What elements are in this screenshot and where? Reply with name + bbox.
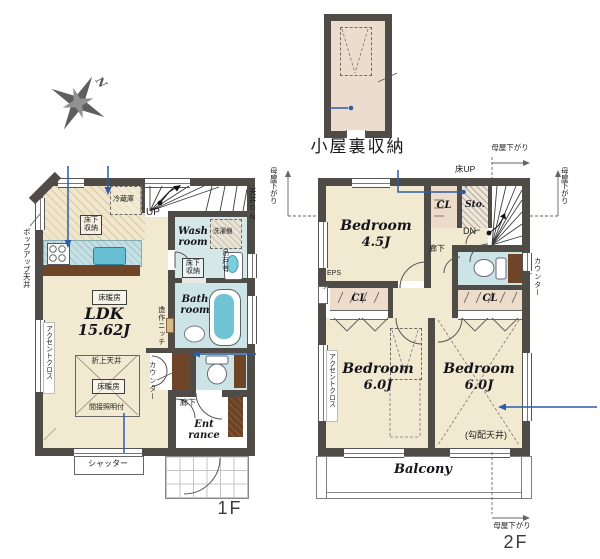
f2-bedroom2-size: 6.0J: [337, 379, 419, 394]
f1-bathroom-label: Bath room: [177, 294, 213, 316]
f2-wall-sto-stairs: [488, 186, 492, 228]
f1-niche-box: [166, 318, 174, 333]
f2-hallway-label: 廊下: [429, 245, 445, 254]
f2-storage-label: Sto.: [462, 200, 488, 210]
f2-moya-top-label: 母屋下がり: [482, 144, 538, 152]
f1-wall-nook-top: [146, 348, 168, 353]
f1-hallway-label: 廊下: [180, 399, 196, 408]
f2-bedroom1-size: 4.5J: [335, 236, 417, 251]
f2-wall-bed1-bottom: [326, 281, 398, 288]
f1-window-top-1: [58, 178, 84, 188]
f2-bedroom2-name: Bedroom: [337, 362, 419, 378]
f1-wall-hall-top-a: [168, 390, 196, 397]
f1-wall-bath-bottom: [168, 348, 255, 353]
f2-window-top-1: [352, 178, 390, 188]
f2-balcony-post-right: [521, 456, 532, 499]
f1-ldk-size: 15.62J: [73, 323, 135, 339]
f2-closet-right-label: CL: [458, 293, 522, 304]
f2-stairs-floor: [492, 186, 522, 247]
f2-closet-left-doors: [330, 310, 388, 320]
attic-ladder-outline: [340, 27, 372, 76]
f1-wall-bottom: [35, 448, 255, 456]
f2-down-label: DN: [463, 227, 476, 237]
f1-niche-label: 造作ニッチ: [157, 306, 165, 346]
f1-entrance-porch: [165, 456, 249, 499]
f1-window-right-2: [247, 296, 257, 344]
f1-stairs-floor: [145, 186, 247, 211]
floorplan-canvas: 小屋裏収納 冷蔵庫 床下収納 UP 洗濯機 Wash room 床下収納 吊戸有…: [0, 0, 600, 559]
f2-wall-bed1-right: [424, 186, 431, 288]
f1-wall-wash-left-b: [168, 270, 175, 280]
f2-counter-label: カウンター: [533, 257, 541, 297]
f1-wall-hall-top-b: [222, 390, 255, 397]
f1-shoe-cabinet: [228, 397, 243, 437]
f1-floor-heating-center: 床暖房: [92, 379, 125, 394]
f1-kitchen-island: [93, 247, 126, 265]
f1-window-right-1: [247, 254, 257, 278]
f1-counter-label: カウンター: [148, 361, 156, 401]
f2-balcony-label: Balcony: [392, 463, 454, 478]
f1-bathtub-water: [214, 294, 234, 339]
f2-accent-cloth-label: アクセントクロス: [327, 353, 334, 407]
f1-floor-label: 1F: [208, 498, 252, 519]
f2-window-right-2: [522, 353, 532, 421]
f2-eps-label: EPS: [327, 270, 341, 278]
f2-bedroom3-name: Bedroom: [438, 362, 520, 378]
f2-bedroom1-name: Bedroom: [335, 219, 417, 235]
f1-indirect-lighting-label: 間接照明付: [75, 404, 138, 412]
f1-hanging-cupboard-label: 吊戸有: [221, 249, 229, 273]
f2-toilet-counter: [508, 254, 522, 283]
f1-wall-bath-left: [168, 280, 175, 348]
f2-window-left-1: [318, 222, 328, 268]
f1-ceiling-down-label: 天井DN: [248, 188, 256, 221]
f2-balcony-post-left: [316, 456, 327, 499]
f1-accent-cloth-label: アクセントクロス: [44, 325, 51, 379]
f2-wall-toilet-top: [452, 245, 522, 252]
f1-refrigerator-label: 冷蔵庫: [113, 196, 134, 204]
f2-wall-center: [428, 318, 435, 448]
f1-entrance-label: Ent rance: [186, 419, 222, 441]
f2-moya-left-label: 母屋下がり: [269, 167, 277, 205]
f1-wall-toilet-left: [190, 353, 196, 390]
f2-wall-top: [318, 178, 530, 186]
f2-sloped-ceiling-label: (勾配天井): [450, 431, 522, 441]
f1-shutter-label: シャッター: [74, 460, 142, 469]
f1-up-label: UP: [146, 207, 160, 218]
f1-wall-hall-left: [168, 390, 176, 448]
f2-moya-bottom-label: 母屋下がり: [484, 522, 540, 530]
f1-window-left-1: [35, 198, 45, 230]
f1-kitchen-bar-counter: [43, 265, 140, 276]
f2-window-bottom-2: [450, 448, 510, 458]
f1-floor-heating-top: 床暖房: [92, 290, 127, 305]
f2-bedroom3-size: 6.0J: [438, 379, 520, 394]
f1-raised-ceiling-label: 折上天井: [75, 357, 138, 365]
f1-wall-stairs-bottom: [168, 211, 255, 217]
f2-closet-top-label: CL: [431, 200, 457, 211]
f1-underfloor-storage-wash: 床下収納: [182, 258, 204, 278]
f2-wall-clleft-right: [388, 288, 393, 318]
f1-nook-counter: [172, 353, 190, 390]
f2-closet-right-doors: [458, 310, 522, 320]
f2-floor-up-label: 床UP: [455, 165, 475, 174]
compass-north-letter: N: [93, 75, 109, 91]
compass-rose-icon: [37, 62, 118, 143]
f1-underfloor-storage-kitchen: 床下収納: [80, 215, 102, 235]
f1-window-top-2: [145, 178, 190, 188]
f1-washing-machine-label: 洗濯機: [213, 228, 233, 235]
f2-moya-right-label: 母屋下がり: [560, 167, 568, 205]
f1-stove: [47, 243, 70, 265]
f2-floor-label: 2F: [496, 532, 536, 553]
attic-label: 小屋裏収納: [300, 138, 416, 157]
f1-wall-wash-left-a: [168, 217, 175, 250]
f2-hall-strip-floor: [393, 288, 424, 318]
f2-closet-left-label: CL: [330, 293, 388, 304]
f1-toilet-vanity: [234, 355, 246, 388]
f2-eps-slot: [318, 286, 328, 304]
f1-ldk-name: LDK: [73, 305, 135, 323]
f1-bath-door-gap: [182, 278, 206, 283]
f2-window-right-1: [522, 253, 532, 271]
f2-wall-toilet-bottom: [458, 285, 522, 290]
f1-popup-ceiling-label: ポップアップ天井: [22, 228, 30, 288]
f1-washroom-label: Wash room: [176, 226, 210, 248]
f2-hall-strip2-floor: [424, 288, 452, 318]
f2-window-bottom-1: [344, 448, 404, 458]
